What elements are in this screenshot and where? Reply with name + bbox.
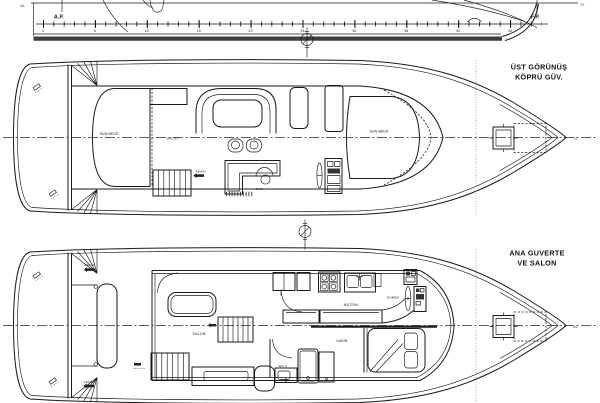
pillow (405, 352, 418, 369)
cabinet (290, 88, 308, 129)
galley-sink (345, 273, 376, 292)
ruler-tick-label: 0 (42, 29, 44, 33)
yacht-plan-drawing: DL DL A.P. F.P. 0 5 10 15 20 25 30 35 40… (0, 0, 600, 403)
ruler-tick-label: 15 (197, 29, 201, 33)
ruler-tick-label: 25 (300, 29, 304, 33)
transom-bench (72, 284, 117, 368)
bow-hatch (490, 312, 547, 341)
label-kabin: KABİN (337, 338, 348, 343)
aft-perpendicular-label: A.P. (54, 15, 64, 21)
datum-label-left: DL (21, 4, 26, 8)
armchair (255, 366, 275, 391)
stairs-up-center (208, 317, 253, 342)
label-stairs-down-bottom: AŞAĞI (84, 379, 94, 384)
salon-bench (192, 367, 254, 386)
down-arrow-icon (193, 173, 204, 178)
salon-sofa (168, 293, 216, 317)
wc-room (270, 339, 334, 383)
ruler-tick-label: 35 (404, 29, 408, 33)
label-wc: WC 4 (279, 364, 287, 368)
upper-deck-plan: SUN-BEDS JAKUZİ SUN-BEDS (3, 60, 596, 216)
door-arc-aft (158, 273, 179, 293)
door-arc-galley (281, 290, 302, 313)
label-bar: BAR (256, 187, 263, 191)
door-arc-wc (273, 339, 293, 358)
stairs-up-aft (133, 353, 189, 380)
scale-ruler: 0 5 10 15 20 25 30 35 40 45 (36, 24, 548, 33)
lower-deck-plan: AŞAĞI AŞAĞI SALON (3, 248, 596, 403)
settee-table (213, 100, 262, 127)
datum-label-right: DL (581, 3, 585, 7)
label-dumen: DÜMEN (387, 296, 399, 300)
label-salon: SALON (193, 332, 206, 336)
upper-deck-title-line2: KÖPRÜ GÜV. (515, 73, 563, 82)
lower-deck-title-line1: ANA GUVERTE (509, 249, 564, 258)
ruler-tick-label: 5 (94, 29, 96, 33)
galley-stove (319, 272, 341, 292)
down-arrow-icon (84, 267, 95, 272)
label-dl-bow: DL (574, 325, 578, 329)
label-stairs-down: AŞAĞI (196, 169, 206, 174)
jacuzzi-cabinet (150, 89, 187, 105)
ruler-tick-label: 10 (145, 29, 149, 33)
label-mutfak: MUTFAK (344, 303, 359, 307)
yacht-plan-page: DL DL A.P. F.P. 0 5 10 15 20 25 30 35 40… (0, 0, 600, 403)
centerline-symbol-middle (299, 220, 311, 250)
flybridge-helm-console (317, 159, 342, 194)
lower-deck-title-line2: VE SALON (517, 259, 556, 268)
label-jakuzi: JAKUZİ (166, 135, 178, 140)
stairs-down (153, 170, 191, 196)
ruler-tick-label: 45 (508, 29, 512, 33)
shower (298, 349, 318, 383)
instrument-panel (328, 169, 341, 174)
ruler-tick-label: 40 (456, 29, 460, 33)
ruler-tick-label: 30 (352, 29, 356, 33)
settee (196, 89, 276, 134)
stools (228, 139, 262, 152)
helm-station (404, 270, 426, 312)
upper-deck-title-line1: ÜST GÖRÜNÜŞ (511, 63, 567, 72)
label-stairs-down-top: AŞAĞI (84, 262, 94, 267)
bed (368, 329, 425, 373)
label-sunbeds-left: SUN-BEDS (100, 132, 119, 136)
label-sunbeds-right: SUN-BEDS (370, 130, 389, 134)
pillow (405, 333, 418, 350)
ruler-tick-label: 20 (249, 29, 253, 33)
label-dl-bow: DL (574, 136, 578, 140)
cabinet-fwd (325, 86, 343, 132)
